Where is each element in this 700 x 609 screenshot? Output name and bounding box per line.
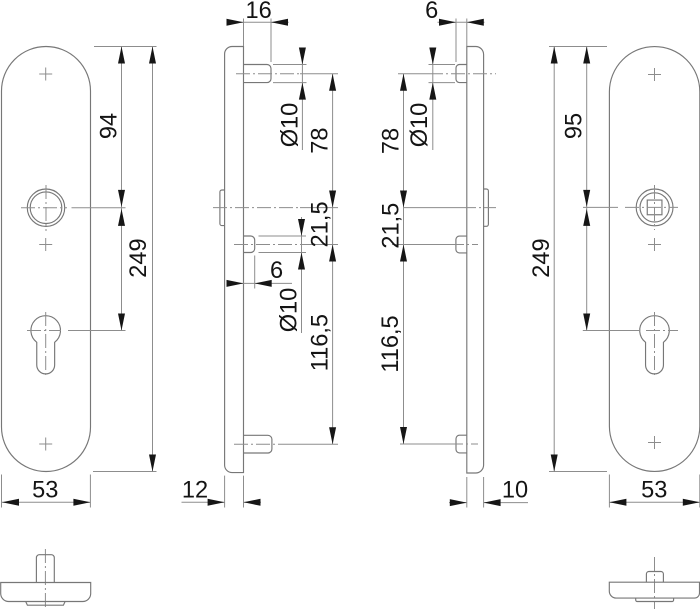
svg-text:249: 249 xyxy=(126,238,152,277)
svg-text:21,5: 21,5 xyxy=(307,201,333,247)
svg-text:53: 53 xyxy=(641,478,667,504)
svg-text:12: 12 xyxy=(182,477,208,503)
svg-text:116,5: 116,5 xyxy=(378,315,404,372)
svg-text:116,5: 116,5 xyxy=(307,314,333,371)
svg-text:Ø10: Ø10 xyxy=(407,103,433,148)
svg-text:78: 78 xyxy=(307,127,333,153)
svg-text:Ø10: Ø10 xyxy=(278,103,304,148)
svg-text:78: 78 xyxy=(379,128,405,154)
svg-text:53: 53 xyxy=(32,478,58,504)
svg-text:94: 94 xyxy=(96,113,122,139)
svg-text:16: 16 xyxy=(245,0,271,24)
svg-text:6: 6 xyxy=(425,0,438,24)
svg-text:6: 6 xyxy=(270,258,283,284)
svg-text:21,5: 21,5 xyxy=(378,203,404,249)
svg-text:10: 10 xyxy=(502,477,528,503)
svg-text:95: 95 xyxy=(562,113,588,139)
svg-text:249: 249 xyxy=(529,238,555,277)
svg-text:Ø10: Ø10 xyxy=(277,288,303,333)
